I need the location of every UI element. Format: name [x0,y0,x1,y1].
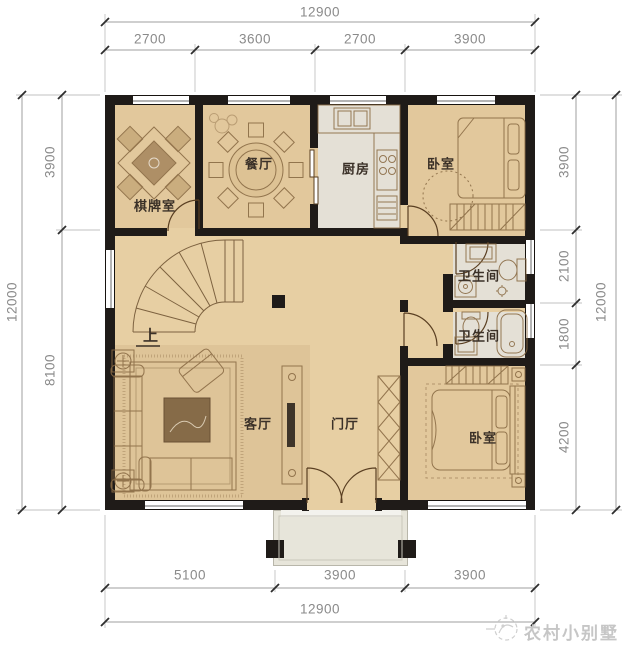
wall-segment [400,358,535,366]
rooster-logo-icon [486,615,517,640]
dim-right-seg-4: 4200 [557,421,572,453]
dim-left-seg-1: 3900 [43,146,58,178]
entry-door-opening [307,500,376,510]
window-symbol [145,500,243,510]
wall-segment [400,105,408,205]
dim-bottom-seg-2: 3900 [324,568,356,583]
wall-segment [310,228,408,236]
floor-shade-bedroom-bottom [408,366,525,500]
dim-top-seg-3: 2700 [344,32,376,47]
wall-segment [201,228,318,236]
floor-shade-living [115,345,310,500]
room-label-living: 客厅 [244,414,272,433]
stair-up-label: 上 [143,325,159,346]
porch-column-right [398,540,416,558]
room-label-kitchen: 厨房 [342,159,370,178]
dim-top-total: 12900 [300,5,340,20]
room-label-bedroom-top: 卧室 [427,154,455,173]
wall-segment [195,105,203,236]
room-label-bathroom-lower: 卫生间 [458,326,500,345]
watermark-brand: 农村小别墅 [524,619,619,644]
wall-segment [400,236,535,244]
room-label-bathroom-upper: 卫生间 [458,266,500,285]
room-label-chess: 棋牌室 [134,196,176,215]
structural-column [272,295,285,308]
dim-right-total: 12000 [594,282,609,322]
dim-bottom-seg-1: 5100 [174,568,206,583]
dim-right-seg-3: 1800 [557,318,572,350]
window-symbol [330,95,386,105]
room-label-foyer: 门厅 [331,414,359,433]
porch-column-left [266,540,284,558]
wall-segment [310,105,318,148]
door-jamb [375,498,382,511]
dim-left-total: 12000 [5,282,20,322]
room-label-bedroom-bottom: 卧室 [469,428,497,447]
dim-bottom-total: 12900 [300,602,340,617]
dim-top-seg-4: 3900 [454,32,486,47]
floor-plan: 棋牌室 餐厅 厨房 卧室 卫生间 卫生间 客厅 门厅 卧室 上 12900 27… [0,0,640,656]
dim-bottom-seg-3: 3900 [454,568,486,583]
window-symbol [105,250,115,308]
floor-shade-bedroom-top [408,105,525,236]
room-label-dining: 餐厅 [245,154,273,173]
window-symbol [525,304,535,338]
dim-right-seg-1: 3900 [557,146,572,178]
dim-top-seg-1: 2700 [134,32,166,47]
window-symbol [228,95,290,105]
dim-top-seg-2: 3600 [239,32,271,47]
wall-segment [443,274,453,312]
wall-segment [443,236,453,242]
entry-threshold [281,510,401,517]
dim-left-seg-2: 8100 [43,354,58,386]
dim-right-seg-2: 2100 [557,250,572,282]
window-symbol [437,95,495,105]
wall-segment [400,300,408,312]
window-symbol [525,240,535,274]
window-symbol [428,500,526,510]
window-symbol [133,95,189,105]
wall-segment [453,300,535,308]
wall-segment [105,228,167,236]
wall-segment [400,346,408,510]
entry-porch [273,510,408,566]
